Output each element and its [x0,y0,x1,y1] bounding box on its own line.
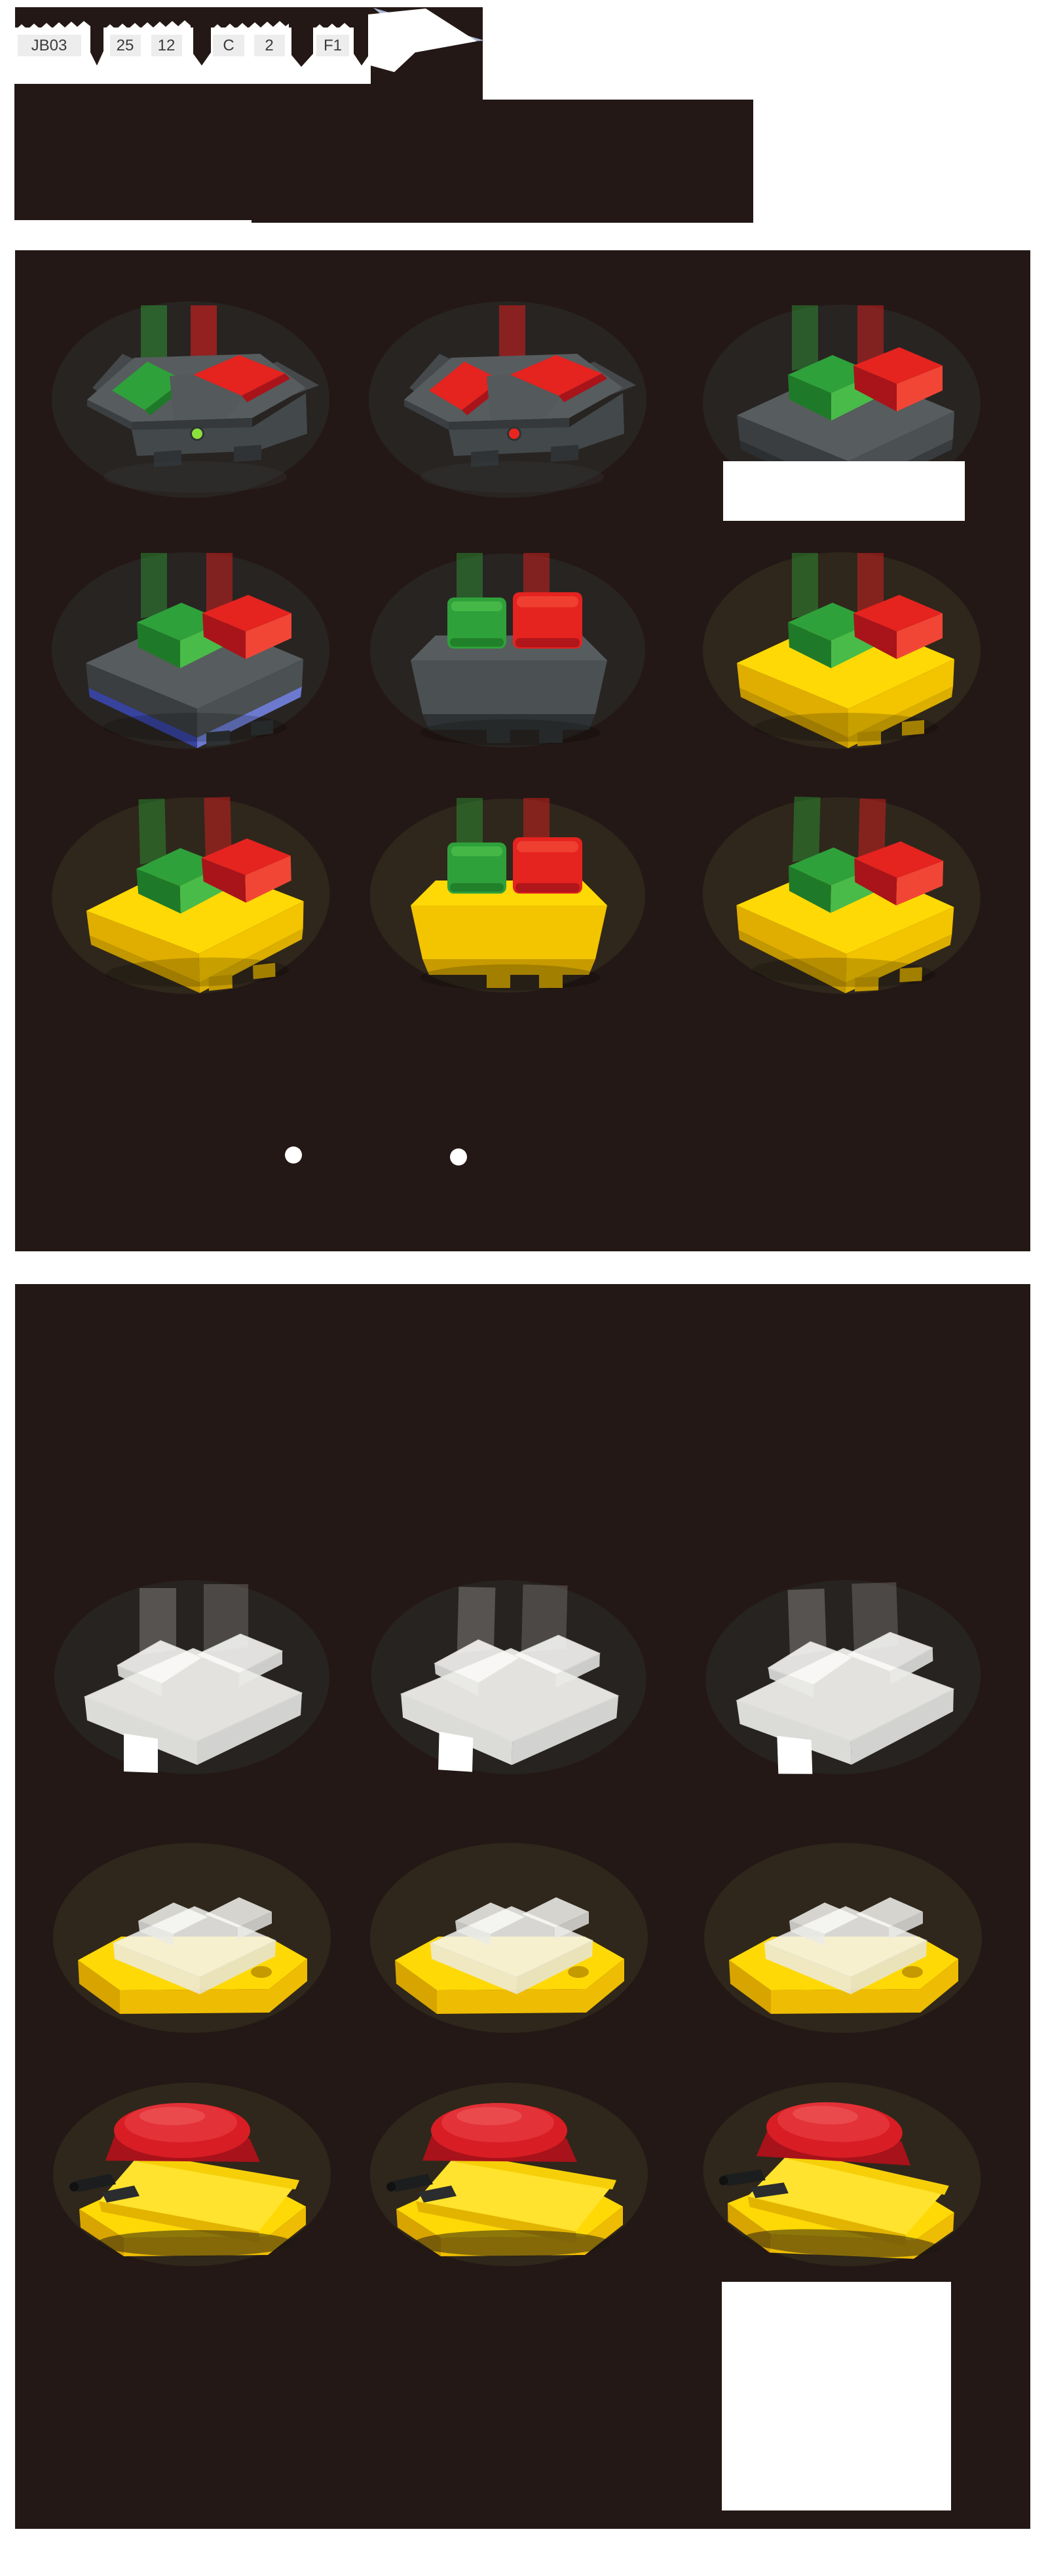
code-segment-jb03: JB03 [18,35,81,56]
cover-illustration [689,1564,997,1781]
product-image-panel2-r3c3-estop-open [689,2047,997,2263]
bullet-dot-1 [285,1146,302,1164]
product-image-panel1-r3c2-buttons-front [355,781,663,997]
product-image-panel2-r2c2-base-cover [355,1820,663,2036]
buttons-iso-illustration [38,536,346,752]
estop-open-illustration [355,2047,663,2263]
product-image-panel1-r2c3-buttons-iso [689,536,997,752]
product-image-panel2-r3c2-estop-open [355,2047,663,2263]
code-segment-f1: F1 [316,35,349,56]
code-text: F1 [324,37,342,54]
product-image-panel2-r1c2-cover [355,1564,663,1781]
pedal-illustration [355,288,663,504]
product-image-panel1-r1c2-pedal [355,288,663,504]
base-cover-illustration [355,1820,663,2036]
estop-open-illustration [689,2047,997,2263]
pedal-illustration [38,288,346,504]
bullet-dot-2 [450,1148,467,1165]
code-segment-25: 25 [110,35,141,56]
buttons-iso-illustration [689,536,997,752]
code-segment-12: 12 [151,35,182,56]
buttons-front-illustration [355,536,663,752]
buttons-iso-illustration [689,781,997,997]
product-image-panel1-r2c1-buttons-iso [38,536,346,752]
product-image-panel2-r3c1-estop-open [38,2047,346,2263]
cover-illustration [355,1564,663,1781]
code-segment-c: C [213,35,244,56]
base-cover-illustration [38,1820,346,2036]
cover-illustration [38,1564,346,1781]
product-image-panel2-r2c3-base-cover [689,1820,997,2036]
redacted-text-block-2 [252,100,753,223]
code-text: 2 [265,37,273,54]
buttons-front-illustration [355,781,663,997]
catalog-page: JB03 25 12 C 2 F1 C3 [0,0,1048,2576]
blank-label-box-1 [723,461,965,521]
product-image-panel2-r1c3-cover [689,1564,997,1781]
product-image-panel1-r3c3-buttons-iso [689,781,997,997]
code-text: C [223,37,234,54]
blank-label-box-2 [722,2282,951,2510]
base-cover-illustration [689,1820,997,2036]
code-segment-2: 2 [254,35,285,56]
code-text: 12 [158,37,176,54]
product-image-panel1-r3c1-buttons-iso [38,781,346,997]
tag-separator [90,28,103,66]
buttons-iso-illustration [38,781,346,997]
tag-separator [193,28,211,66]
product-image-panel1-r1c1-pedal [38,288,346,504]
code-text: JB03 [31,37,67,54]
product-image-panel1-r2c2-buttons-front [355,536,663,752]
estop-open-illustration [38,2047,346,2263]
product-image-panel2-r1c1-cover [38,1564,346,1781]
product-image-panel2-r2c1-base-cover [38,1820,346,2036]
code-text: 25 [117,37,134,54]
tag-separator [291,28,313,67]
